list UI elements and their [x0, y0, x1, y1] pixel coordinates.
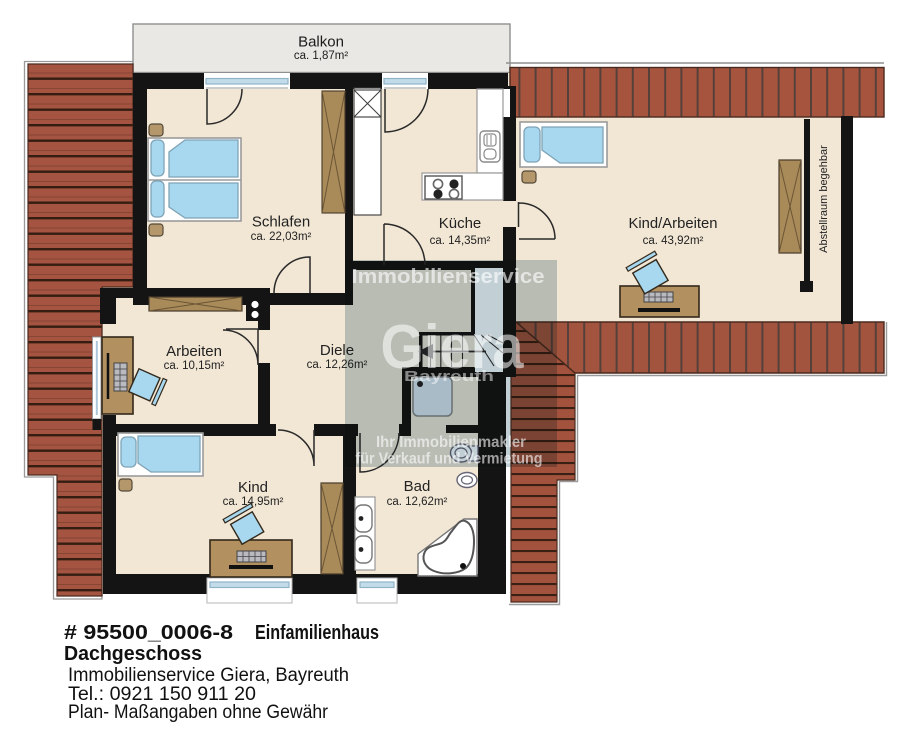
svg-text:ca. 14,35m²: ca. 14,35m²: [430, 235, 491, 247]
svg-text:ca. 12,62m²: ca. 12,62m²: [387, 496, 448, 508]
svg-text:für Verkauf und Vermietung: für Verkauf und Vermietung: [356, 451, 543, 468]
svg-text:Immobilienservice Giera, Bayre: Immobilienservice Giera, Bayreuth: [68, 665, 349, 686]
svg-text:Dachgeschoss: Dachgeschoss: [64, 643, 202, 665]
svg-text:ca. 43,92m²: ca. 43,92m²: [643, 235, 704, 247]
svg-text:Kind: Kind: [238, 479, 268, 496]
svg-text:Kind/Arbeiten: Kind/Arbeiten: [629, 215, 718, 232]
svg-text:ca. 1,87m²: ca. 1,87m²: [294, 50, 348, 62]
svg-text:ca. 10,15m²: ca. 10,15m²: [164, 360, 225, 372]
svg-text:Einfamilienhaus: Einfamilienhaus: [255, 622, 379, 644]
svg-text:ca. 22,03m²: ca. 22,03m²: [251, 231, 312, 243]
svg-text:Bad: Bad: [404, 478, 431, 495]
svg-text:Abstellraum begehbar: Abstellraum begehbar: [818, 145, 830, 253]
svg-text:Immobilienservice: Immobilienservice: [352, 266, 545, 288]
svg-text:Balkon: Balkon: [298, 34, 344, 51]
svg-text:Küche: Küche: [439, 215, 482, 232]
svg-text:Ihr Immobilienmakler: Ihr Immobilienmakler: [376, 434, 526, 451]
svg-text:Bayreuth: Bayreuth: [404, 369, 494, 385]
svg-text:# 95500_0006-8: # 95500_0006-8: [64, 622, 233, 644]
svg-text:Arbeiten: Arbeiten: [166, 343, 222, 360]
svg-text:Plan- Maßangaben ohne Gewähr: Plan- Maßangaben ohne Gewähr: [68, 702, 329, 723]
svg-text:Schlafen: Schlafen: [252, 214, 310, 231]
svg-text:ca. 14,95m²: ca. 14,95m²: [223, 496, 284, 508]
